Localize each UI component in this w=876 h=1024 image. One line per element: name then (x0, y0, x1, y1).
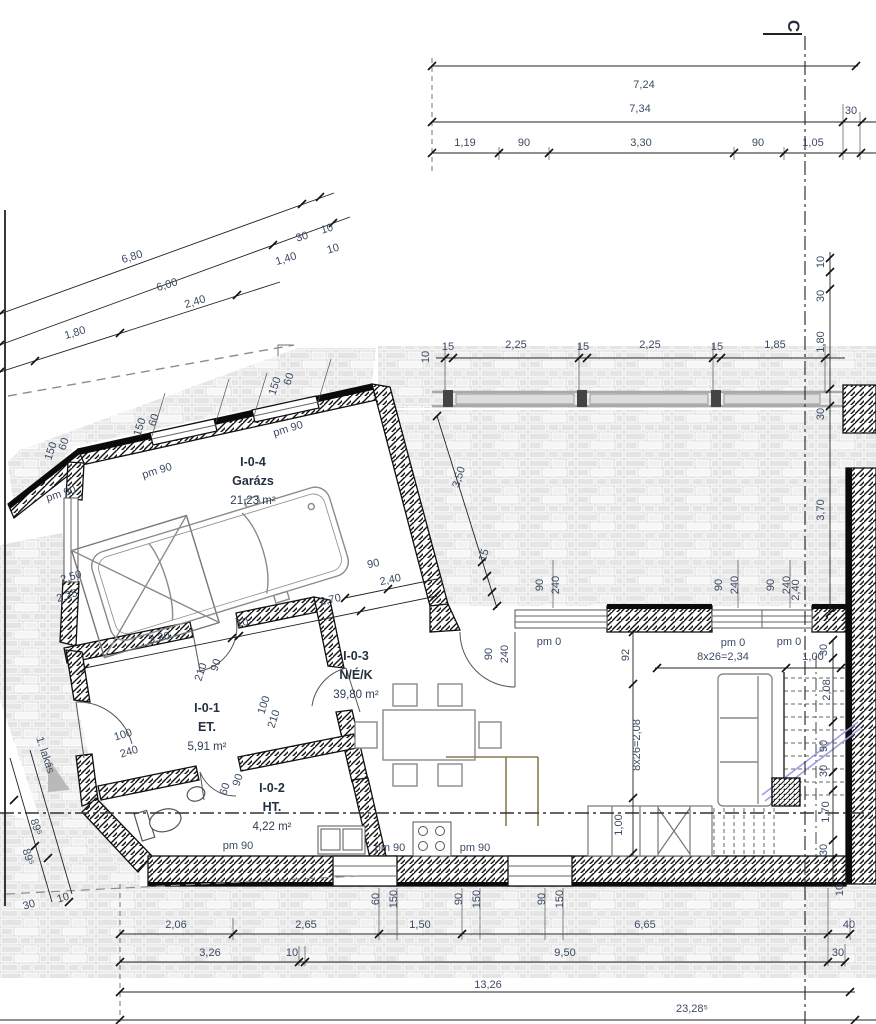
dimension-label: pm 0 (777, 636, 801, 648)
floor-plan-drawing: C 7,247,34301,19903,30901,056,8030106,00… (0, 0, 876, 1024)
section-marker: C (763, 20, 803, 34)
dimension-label: 8x26=2,34 (697, 651, 749, 663)
room-label-name: HT. (263, 800, 282, 814)
dimension-label: 90 (818, 740, 830, 752)
dimension-label: 30 (845, 105, 857, 117)
dimension-label: 1,50 (409, 919, 430, 931)
dimension-label: 6,65 (634, 919, 655, 931)
room-label-id: I-0-3 (343, 649, 369, 663)
dimension-label: 10 (286, 947, 298, 959)
room-label-area: 39,80 m² (333, 689, 379, 701)
dimension-label: 90 (366, 557, 380, 571)
dimension-label: 9,50 (554, 947, 575, 959)
room-label-area: 4,22 m² (253, 821, 292, 833)
dimension-label: 7,24 (633, 79, 654, 91)
floor-plan-page: C 7,247,34301,19903,30901,056,8030106,00… (0, 0, 876, 1024)
room-label-id: I-0-2 (259, 781, 285, 795)
sofa (718, 674, 772, 806)
dimension-label: 30 (815, 290, 827, 302)
dimension-label: 1,19 (454, 137, 475, 149)
dimension-label: 150 (554, 890, 566, 908)
dimension-label: 40 (843, 919, 855, 931)
dimension-label: 92 (620, 649, 632, 661)
dimension-label: 30 (832, 947, 844, 959)
dimension-label: 30 (295, 230, 310, 245)
dimension-label: 90 (453, 893, 465, 905)
fence-wall (432, 390, 843, 407)
dimension-label: 1,00 (613, 814, 625, 835)
dimension-label: 10 (235, 616, 249, 630)
dimension-label: 90 (534, 579, 546, 591)
dimension-label: 2,40 (183, 293, 207, 311)
dimension-label: 10 (834, 884, 846, 896)
dimension-label: 3,70 (815, 499, 827, 520)
dimension-label: 90 (518, 137, 530, 149)
dimension-label: 1,40 (274, 250, 298, 268)
dimension-label: 10 (815, 256, 827, 268)
dimension-label: 2,25 (505, 339, 526, 351)
dimension-label: 1,85 (764, 339, 785, 351)
dimension-label: 2,25 (639, 339, 660, 351)
dimension-label: 3,26 (199, 947, 220, 959)
dimension-label: 1,80 (815, 331, 827, 352)
dimension-label: 150 (471, 890, 483, 908)
dimension-label: 3,30 (630, 137, 651, 149)
dimension-label: 15 (577, 341, 589, 353)
room-label-area: 21,23 m² (230, 495, 276, 507)
chimney-icon (772, 778, 800, 806)
dimension-label: pm 90 (223, 840, 254, 852)
stove-icon (413, 822, 451, 856)
dimension-label: 90 (536, 893, 548, 905)
room-label-name: Garázs (232, 474, 274, 488)
room-label-id: I-0-4 (240, 455, 266, 469)
dimension-label: pm 90 (375, 842, 406, 854)
dimension-label: 30 (818, 844, 830, 856)
dimension-label: pm 0 (537, 636, 561, 648)
dimension-label: 30 (818, 644, 830, 656)
room-label-name: N/É/K (339, 667, 372, 682)
dimension-label: 10 (326, 242, 341, 257)
dimension-label: 90 (483, 648, 495, 660)
dimension-label: 90 (713, 579, 725, 591)
dimension-label: 8x26=2,08 (631, 719, 643, 771)
dimension-label: 90 (752, 137, 764, 149)
dimension-label: 2,08 (821, 679, 833, 700)
section-marker-c: C (784, 20, 803, 32)
dimension-label: 6,00 (155, 276, 179, 294)
dimension-label: 90 (765, 579, 777, 591)
dimension-label: 13,26 (474, 979, 502, 991)
room-label-name: ET. (198, 720, 216, 734)
dimension-label: 240 (729, 576, 741, 594)
dimension-label: 7,34 (629, 103, 650, 115)
dimension-label: 240 (550, 576, 562, 594)
dimension-label: 60 (370, 893, 382, 905)
dimension-label: 15 (711, 341, 723, 353)
dimension-label: 30 (815, 408, 827, 420)
dimension-label: 240 (781, 576, 793, 594)
room-label-area: 5,91 m² (188, 741, 227, 753)
dimension-label: pm 90 (460, 842, 491, 854)
dimension-label: 2,65 (295, 919, 316, 931)
dimension-label: 10 (420, 351, 432, 363)
room-label-id: I-0-1 (194, 701, 220, 715)
dimension-label: 23,28⁵ (676, 1003, 708, 1015)
dimension-label: 2,06 (165, 919, 186, 931)
dimension-label: 30 (818, 765, 830, 777)
dimension-label: 1,05 (802, 137, 823, 149)
dimension-label: 1,70 (820, 801, 832, 822)
dimension-label: pm 0 (721, 637, 745, 649)
dimension-label: 150 (388, 890, 400, 908)
dimension-label: 240 (499, 645, 511, 663)
dimension-label: 1,80 (63, 324, 87, 342)
dimension-label: 15 (442, 341, 454, 353)
